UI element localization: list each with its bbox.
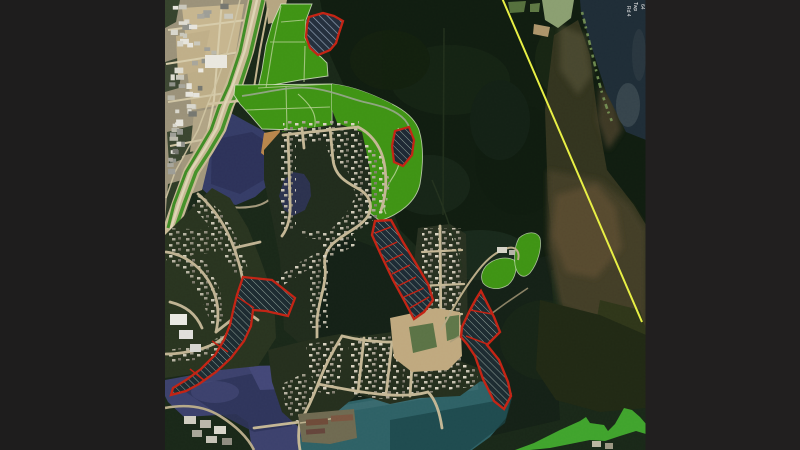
svg-text:64: 64	[639, 4, 645, 10]
svg-text:Twp: Twp	[632, 2, 638, 11]
svg-text:Rd 4: Rd 4	[625, 6, 631, 17]
